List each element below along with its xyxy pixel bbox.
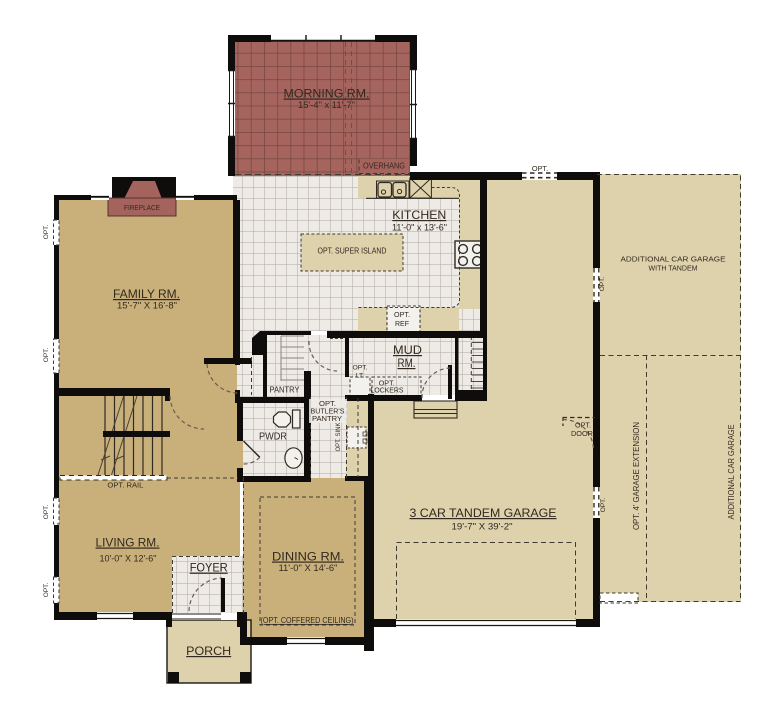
svg-text:OPT. RAIL: OPT. RAIL [107,481,143,490]
svg-text:PWDR: PWDR [259,431,287,443]
svg-text:MUD: MUD [393,343,422,357]
svg-text:15'-7" X 16'-8": 15'-7" X 16'-8" [117,301,177,311]
svg-text:LIVING RM.: LIVING RM. [96,536,160,550]
svg-text:PANTRY: PANTRY [270,386,301,395]
svg-text:OPT.: OPT. [43,583,50,598]
svg-text:OPT.: OPT. [600,498,607,513]
svg-text:OPT.: OPT. [532,164,548,173]
svg-text:RM.: RM. [398,356,416,370]
svg-text:OPT.: OPT. [599,277,606,292]
svg-text:(OPT. COFFERED CEILING): (OPT. COFFERED CEILING) [261,616,354,625]
svg-text:10'-0" X 12'-6": 10'-0" X 12'-6" [100,554,157,564]
svg-text:15'-4" x 11'-7": 15'-4" x 11'-7" [298,100,355,110]
svg-text:OPT.: OPT. [394,310,410,319]
svg-text:11'-0" x 13'-6": 11'-0" x 13'-6" [392,223,447,233]
svg-text:ADDITIONAL CAR GARAGE: ADDITIONAL CAR GARAGE [621,255,726,264]
svg-text:WITH TANDEM: WITH TANDEM [649,264,698,273]
svg-text:DOOR.: DOOR. [571,429,595,438]
svg-text:11'-0" X 14'-6": 11'-0" X 14'-6" [279,563,338,573]
svg-text:19'-7" X 39'-2": 19'-7" X 39'-2" [452,522,513,532]
svg-text:OVERHANG: OVERHANG [363,162,405,171]
svg-text:PANTRY: PANTRY [312,414,342,423]
svg-text:LOCKERS: LOCKERS [371,386,404,395]
svg-text:OPT.: OPT. [43,505,50,520]
svg-text:3 CAR TANDEM GARAGE: 3 CAR TANDEM GARAGE [410,506,557,520]
svg-text:LT.: LT. [356,373,365,380]
svg-text:FAMILY RM.: FAMILY RM. [113,287,180,301]
svg-text:FOYER: FOYER [190,563,228,575]
svg-text:REF: REF [395,319,409,328]
svg-text:DINING RM.: DINING RM. [272,550,344,564]
svg-text:OPT.: OPT. [43,225,50,240]
svg-text:OPT. SUPER ISLAND: OPT. SUPER ISLAND [318,247,387,256]
svg-text:PORCH: PORCH [186,644,231,658]
svg-text:OPT. 4' GARAGE EXTENSION: OPT. 4' GARAGE EXTENSION [632,422,641,530]
svg-text:OPT.: OPT. [352,365,367,372]
svg-text:KITCHEN: KITCHEN [392,208,446,222]
svg-text:MORNING RM.: MORNING RM. [284,87,370,101]
svg-text:OPT.: OPT. [43,348,50,363]
svg-text:ADDITIONAL CAR GARAGE: ADDITIONAL CAR GARAGE [727,425,736,520]
svg-text:OPT. SINK: OPT. SINK [336,422,342,451]
svg-text:FIREPLACE: FIREPLACE [124,205,160,212]
